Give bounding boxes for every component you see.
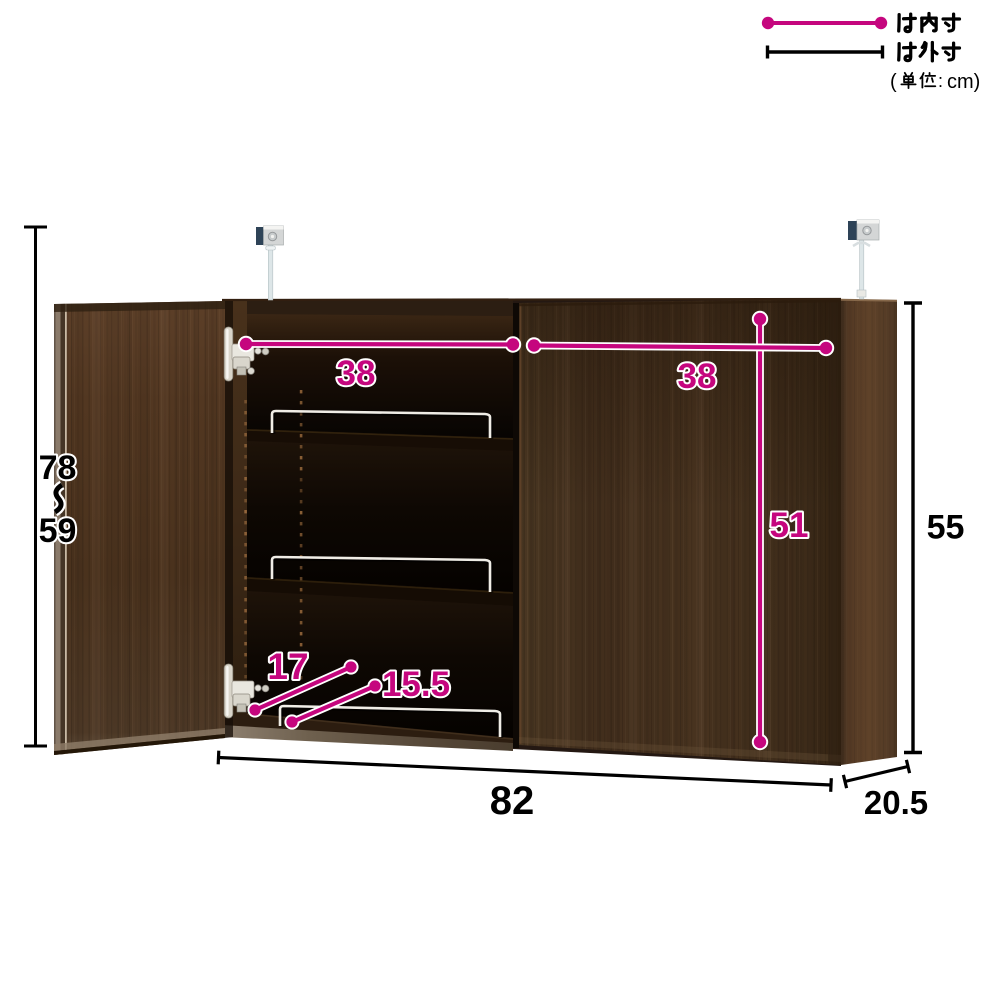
svg-text:82: 82 <box>490 779 535 823</box>
svg-text:20.5: 20.5 <box>864 784 928 821</box>
svg-text:51: 51 <box>770 506 809 545</box>
svg-text:(: ( <box>890 71 897 93</box>
svg-text:17: 17 <box>267 646 308 687</box>
svg-text:cm): cm) <box>947 71 980 93</box>
svg-text:38: 38 <box>337 354 376 393</box>
svg-text:15.5: 15.5 <box>382 665 450 704</box>
svg-text:59: 59 <box>39 512 77 550</box>
svg-text::: : <box>938 71 943 91</box>
svg-text:38: 38 <box>678 357 717 396</box>
svg-text:78: 78 <box>39 449 77 487</box>
svg-text:55: 55 <box>927 509 965 547</box>
